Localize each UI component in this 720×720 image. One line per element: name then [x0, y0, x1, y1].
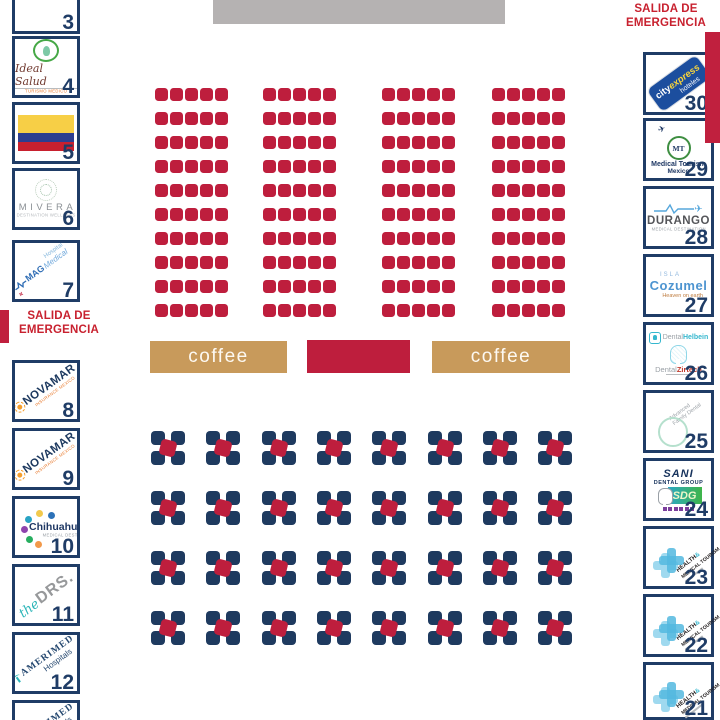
- chair: [552, 280, 565, 293]
- banquet-table: [262, 551, 296, 585]
- chair: [278, 208, 291, 221]
- emergency-exit-sign-right: SALIDA DE EMERGENCIA: [618, 3, 714, 30]
- chair: [215, 136, 228, 149]
- chair: [323, 256, 336, 269]
- chair: [293, 136, 306, 149]
- booth-number: 6: [62, 208, 74, 229]
- chair: [442, 280, 455, 293]
- booth-25: Advanced Family Dental 25: [643, 390, 714, 453]
- chair: [522, 280, 535, 293]
- chair: [263, 304, 276, 317]
- chair: [537, 88, 550, 101]
- service-counter: [307, 340, 410, 373]
- chair: [397, 208, 410, 221]
- person-ring-icon: [33, 39, 59, 62]
- brand-subtext: DENTAL GROUP: [654, 480, 704, 486]
- seating-block: [155, 88, 228, 317]
- banquet-table: [483, 611, 517, 645]
- chair: [537, 256, 550, 269]
- chair: [507, 136, 520, 149]
- seating-block: [382, 88, 455, 317]
- chair: [278, 280, 291, 293]
- chair: [155, 232, 168, 245]
- chair: [442, 208, 455, 221]
- chair: [215, 208, 228, 221]
- chair: [293, 304, 306, 317]
- chair: [382, 232, 395, 245]
- chair: [382, 88, 395, 101]
- chair: [442, 184, 455, 197]
- chair: [293, 184, 306, 197]
- chair: [308, 112, 321, 125]
- chair: [308, 160, 321, 173]
- booth-number: 25: [685, 431, 708, 452]
- booth-number: 12: [51, 672, 74, 693]
- tooth-icon: [658, 488, 673, 505]
- booth-12: AMERIMED Hospitals 12: [12, 632, 80, 694]
- booth-number: 28: [685, 227, 708, 248]
- chair: [215, 304, 228, 317]
- chair: [278, 160, 291, 173]
- tooth-icon: [649, 332, 661, 344]
- seating-block: [263, 88, 336, 317]
- chair: [397, 232, 410, 245]
- booth-number: 24: [685, 499, 708, 520]
- chair: [308, 136, 321, 149]
- booth-27: ISLA Cozumel Heaven on earth 27: [643, 254, 714, 317]
- chair: [278, 88, 291, 101]
- chair: [492, 208, 505, 221]
- booth-10: Chihuahua MEDICAL DESTINATION 10: [12, 496, 80, 558]
- booth-number: 7: [62, 280, 74, 301]
- dots-burst-icon: [35, 179, 57, 201]
- chair: [427, 184, 440, 197]
- chair: [537, 208, 550, 221]
- brand-text: DURANGO: [647, 215, 710, 227]
- chair: [155, 160, 168, 173]
- expo-floorplan: coffee coffee 3 Ideal Salud TURISMO MEDI…: [0, 0, 720, 720]
- chair: [492, 136, 505, 149]
- banquet-table: [428, 491, 462, 525]
- booth-number: 21: [685, 698, 708, 719]
- chair: [552, 232, 565, 245]
- chair: [200, 88, 213, 101]
- banquet-table: [372, 551, 406, 585]
- booth-30: cityexpress hoteles 30: [643, 52, 714, 115]
- booth-number: 23: [685, 567, 708, 588]
- chair: [185, 136, 198, 149]
- chair: [185, 160, 198, 173]
- banquet-table: [483, 491, 517, 525]
- plane-stethoscope-icon: MT: [667, 136, 691, 160]
- chair: [552, 256, 565, 269]
- banquet-table: [151, 551, 185, 585]
- chair: [427, 280, 440, 293]
- chair: [412, 184, 425, 197]
- booth-number: 5: [62, 142, 74, 163]
- banquet-table: [206, 611, 240, 645]
- brand-text: Dental: [663, 334, 683, 341]
- chair: [552, 88, 565, 101]
- chair: [200, 208, 213, 221]
- banquet-table: [372, 611, 406, 645]
- chair: [200, 136, 213, 149]
- banquet-table: [317, 431, 351, 465]
- chair: [323, 112, 336, 125]
- emergency-exit-bar-right: [705, 32, 720, 143]
- chair: [522, 136, 535, 149]
- chair: [263, 184, 276, 197]
- chair: [170, 160, 183, 173]
- seating-block: [492, 88, 565, 317]
- chair: [185, 304, 198, 317]
- chair: [215, 160, 228, 173]
- chair: [382, 160, 395, 173]
- banquet-table: [372, 431, 406, 465]
- chair: [492, 256, 505, 269]
- emergency-exit-sign-left: SALIDA DE EMERGENCIA: [8, 310, 110, 337]
- chair: [185, 112, 198, 125]
- chair: [200, 280, 213, 293]
- booth-23: HEALTH& MEDICAL TOURISM 23: [643, 526, 714, 589]
- chair: [507, 232, 520, 245]
- chair: [263, 232, 276, 245]
- chair: [170, 88, 183, 101]
- chair: [537, 112, 550, 125]
- chair: [412, 136, 425, 149]
- chair: [507, 184, 520, 197]
- brand-text2: Helbein: [683, 334, 708, 341]
- banquet-table: [372, 491, 406, 525]
- chair: [442, 232, 455, 245]
- chair: [263, 88, 276, 101]
- chair: [427, 208, 440, 221]
- coffee-label: coffee: [471, 346, 531, 368]
- chair: [155, 280, 168, 293]
- amerimed-logo: AMERIMED Hospitals: [15, 703, 77, 720]
- banquet-table: [428, 431, 462, 465]
- chair: [522, 112, 535, 125]
- chair: [170, 304, 183, 317]
- banquet-table: [151, 611, 185, 645]
- chair: [323, 280, 336, 293]
- booth-number: 11: [52, 604, 74, 625]
- banquet-table: [262, 431, 296, 465]
- chair: [308, 280, 321, 293]
- chair: [382, 256, 395, 269]
- booth-6: MIVERA DESTINATION WELLNESS 6: [12, 168, 80, 230]
- chair: [278, 184, 291, 197]
- chair: [397, 280, 410, 293]
- chair: [492, 232, 505, 245]
- chair: [215, 88, 228, 101]
- banquet-table: [483, 431, 517, 465]
- chair: [522, 304, 535, 317]
- chair: [278, 232, 291, 245]
- pulse-plane-icon: [654, 203, 694, 215]
- booth-7: Hospital MAG Medical × 7: [12, 240, 80, 302]
- chair: [278, 256, 291, 269]
- exit-label-line1: SALIDA DE: [618, 3, 714, 17]
- coffee-station-left: coffee: [150, 341, 287, 373]
- brand-text: MAG: [24, 265, 47, 285]
- chair: [397, 160, 410, 173]
- chair: [293, 232, 306, 245]
- chair: [397, 256, 410, 269]
- chair: [427, 136, 440, 149]
- chair: [308, 256, 321, 269]
- booth-8: NOVAMAR INSURANCE MEXICO 8: [12, 360, 80, 422]
- plane-icon: ✈: [694, 204, 702, 215]
- chair: [293, 112, 306, 125]
- chair: [155, 304, 168, 317]
- booth-number: 8: [62, 400, 74, 421]
- chair: [442, 136, 455, 149]
- chair: [397, 136, 410, 149]
- chair: [427, 112, 440, 125]
- booth-13-partial: AMERIMED Hospitals: [12, 700, 80, 720]
- chair: [308, 88, 321, 101]
- chair: [537, 280, 550, 293]
- chair: [263, 280, 276, 293]
- chair: [442, 304, 455, 317]
- brand-text2: DRS.: [33, 569, 77, 607]
- chair: [155, 136, 168, 149]
- chair: [170, 208, 183, 221]
- chair: [200, 256, 213, 269]
- chair: [492, 160, 505, 173]
- booth-29: ✈ MT Medical Tourism Mexico 29: [643, 118, 714, 181]
- chair: [427, 88, 440, 101]
- chair: [492, 280, 505, 293]
- brand-text: SANI: [663, 468, 693, 480]
- chair: [323, 232, 336, 245]
- cross-mark-icon: ×: [17, 291, 25, 299]
- banquet-table: [538, 491, 572, 525]
- chair: [522, 88, 535, 101]
- chair: [185, 280, 198, 293]
- stage: [213, 0, 505, 24]
- chair: [185, 208, 198, 221]
- booth-9: NOVAMAR INSURANCE MEXICO 9: [12, 428, 80, 490]
- chair: [323, 160, 336, 173]
- banquet-table: [317, 611, 351, 645]
- monogram: MT: [672, 144, 684, 153]
- chair: [507, 304, 520, 317]
- chair: [155, 208, 168, 221]
- chair: [552, 136, 565, 149]
- chair: [185, 88, 198, 101]
- chair: [293, 280, 306, 293]
- banquet-table: [206, 551, 240, 585]
- chair: [308, 232, 321, 245]
- banquet-table: [206, 431, 240, 465]
- chair: [293, 208, 306, 221]
- chair: [412, 280, 425, 293]
- booth-11: the DRS. 11: [12, 564, 80, 626]
- chair: [427, 304, 440, 317]
- chair: [537, 304, 550, 317]
- chair: [155, 256, 168, 269]
- chair: [382, 184, 395, 197]
- chair: [155, 184, 168, 197]
- chair: [278, 112, 291, 125]
- chair: [185, 256, 198, 269]
- chair: [442, 256, 455, 269]
- chair: [185, 184, 198, 197]
- chair: [293, 88, 306, 101]
- banquet-table: [262, 611, 296, 645]
- chair: [323, 208, 336, 221]
- chair: [200, 304, 213, 317]
- chair: [412, 208, 425, 221]
- chair: [537, 160, 550, 173]
- chair: [552, 184, 565, 197]
- chair: [522, 160, 535, 173]
- chair: [412, 160, 425, 173]
- banquet-table: [428, 551, 462, 585]
- chair: [215, 232, 228, 245]
- chair: [170, 280, 183, 293]
- banquet-table: [206, 491, 240, 525]
- chair: [200, 184, 213, 197]
- chair: [522, 184, 535, 197]
- chair: [397, 112, 410, 125]
- chair: [263, 136, 276, 149]
- chair: [507, 208, 520, 221]
- banquet-table: [538, 551, 572, 585]
- chair: [155, 88, 168, 101]
- banquet-table: [317, 491, 351, 525]
- chair: [552, 304, 565, 317]
- chair: [155, 112, 168, 125]
- chair: [552, 208, 565, 221]
- chair: [200, 112, 213, 125]
- chair: [308, 184, 321, 197]
- chair: [308, 208, 321, 221]
- chair: [170, 136, 183, 149]
- chair: [263, 256, 276, 269]
- chair: [442, 112, 455, 125]
- chair: [507, 280, 520, 293]
- wreath-ring-icon: [658, 417, 688, 447]
- chair: [170, 256, 183, 269]
- chair: [382, 136, 395, 149]
- chair: [382, 112, 395, 125]
- brand-text: Cozumel: [650, 278, 708, 293]
- chair: [200, 160, 213, 173]
- banquet-table: [151, 491, 185, 525]
- booth-26: Dental Helbein Dental Zirtech 26: [643, 322, 714, 385]
- booth-number: 4: [62, 76, 74, 97]
- chair: [323, 184, 336, 197]
- chair: [537, 136, 550, 149]
- booth-21: HEALTH& MEDICAL TOURISM 21: [643, 662, 714, 720]
- chair: [522, 232, 535, 245]
- banquet-table: [317, 551, 351, 585]
- banquet-table: [262, 491, 296, 525]
- chair: [492, 112, 505, 125]
- chair: [427, 232, 440, 245]
- chair: [552, 160, 565, 173]
- chair: [537, 184, 550, 197]
- booth-number: 3: [62, 12, 74, 33]
- banquet-table: [538, 611, 572, 645]
- booth-4: Ideal Salud TURISMO MEDICO 4: [12, 36, 80, 98]
- exit-label-line2: EMERGENCIA: [8, 324, 110, 338]
- exit-label-line2: EMERGENCIA: [618, 17, 714, 31]
- chair: [323, 136, 336, 149]
- chair: [537, 232, 550, 245]
- booth-number: 9: [62, 468, 74, 489]
- chair: [293, 160, 306, 173]
- chair: [492, 88, 505, 101]
- chair: [552, 112, 565, 125]
- chair: [170, 184, 183, 197]
- chair: [382, 208, 395, 221]
- tooth-sketch-icon: [670, 345, 687, 364]
- chair: [170, 112, 183, 125]
- chair: [522, 208, 535, 221]
- chair: [185, 232, 198, 245]
- banquet-table: [428, 611, 462, 645]
- booth-3: 3: [12, 0, 80, 34]
- chair: [215, 256, 228, 269]
- chair: [412, 232, 425, 245]
- plane-icon: ✈: [656, 123, 667, 136]
- chair: [412, 112, 425, 125]
- chair: [215, 280, 228, 293]
- chair: [263, 208, 276, 221]
- brand-text: Chihuahua: [29, 521, 77, 533]
- banquet-table: [538, 431, 572, 465]
- booth-24: SANI DENTAL GROUP SDG 24: [643, 458, 714, 521]
- booth-22: HEALTH& MEDICAL TOURISM 22: [643, 594, 714, 657]
- chair: [215, 112, 228, 125]
- chair: [293, 256, 306, 269]
- chair: [412, 88, 425, 101]
- chair: [507, 112, 520, 125]
- chair: [263, 112, 276, 125]
- chair: [170, 232, 183, 245]
- chair: [278, 136, 291, 149]
- chair: [507, 88, 520, 101]
- coffee-station-right: coffee: [432, 341, 570, 373]
- chair: [427, 256, 440, 269]
- chair: [507, 256, 520, 269]
- chair: [308, 304, 321, 317]
- chair: [323, 304, 336, 317]
- chair: [397, 304, 410, 317]
- brand-text3: Dental: [655, 365, 677, 374]
- chair: [382, 280, 395, 293]
- chair: [412, 304, 425, 317]
- chair: [382, 304, 395, 317]
- chair: [397, 88, 410, 101]
- banquet-table: [483, 551, 517, 585]
- banquet-table: [151, 431, 185, 465]
- booth-5: 5: [12, 102, 80, 164]
- chair: [492, 304, 505, 317]
- brand-subtext: TURISMO MEDICO: [25, 90, 67, 94]
- booth-number: 10: [51, 536, 74, 557]
- chair: [278, 304, 291, 317]
- chair: [215, 184, 228, 197]
- booth-28: ✈ DURANGO MEDICAL DESTINATION 28: [643, 186, 714, 249]
- chair: [427, 160, 440, 173]
- chair: [442, 88, 455, 101]
- chair: [522, 256, 535, 269]
